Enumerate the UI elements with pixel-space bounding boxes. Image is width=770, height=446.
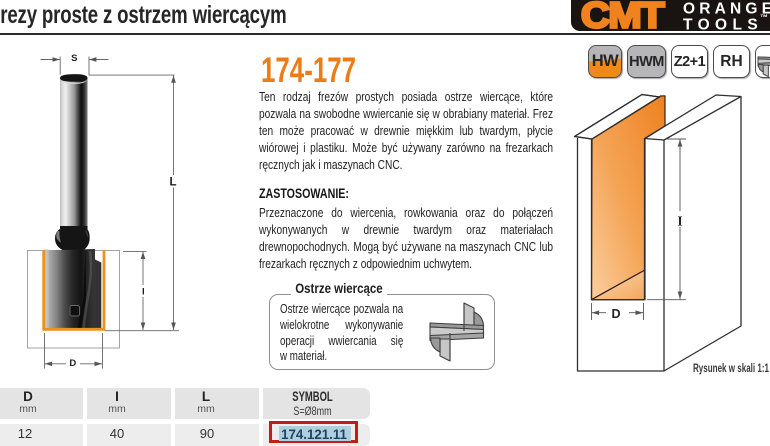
svg-text:I: I <box>142 287 145 298</box>
svg-text:L: L <box>169 176 176 188</box>
svg-text:I: I <box>677 214 682 229</box>
svg-text:D: D <box>611 307 620 321</box>
svg-text:S: S <box>71 53 77 64</box>
svg-text:Rysunek w skali 1:1: Rysunek w skali 1:1 <box>693 363 769 375</box>
svg-text:D: D <box>69 358 76 369</box>
